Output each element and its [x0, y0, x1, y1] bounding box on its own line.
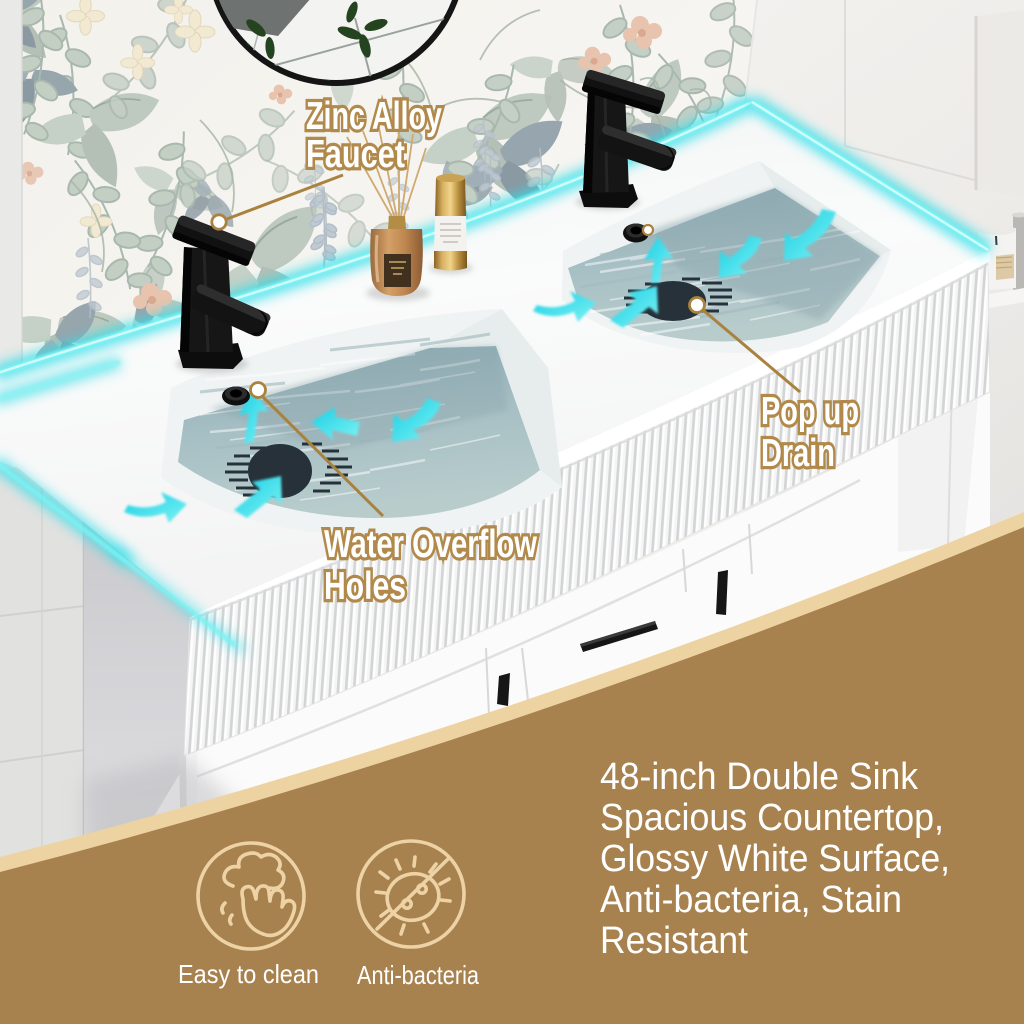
svg-text:Drain: Drain — [761, 432, 835, 475]
svg-text:Water Overflow: Water Overflow — [324, 523, 537, 566]
svg-text:Anti-bacteria: Anti-bacteria — [357, 960, 479, 990]
svg-text:Spacious Countertop,: Spacious Countertop, — [600, 797, 944, 839]
svg-text:Easy to clean: Easy to clean — [178, 959, 319, 989]
svg-text:Faucet: Faucet — [306, 133, 405, 176]
svg-text:Zinc Alloy: Zinc Alloy — [306, 95, 442, 138]
svg-text:Glossy White Surface,: Glossy White Surface, — [600, 838, 950, 880]
svg-text:Pop up: Pop up — [761, 390, 859, 433]
svg-text:48-inch Double Sink: 48-inch Double Sink — [600, 756, 919, 798]
svg-text:Resistant: Resistant — [600, 920, 748, 962]
svg-text:Holes: Holes — [324, 565, 406, 608]
svg-text:Anti-bacteria, Stain: Anti-bacteria, Stain — [600, 879, 902, 921]
